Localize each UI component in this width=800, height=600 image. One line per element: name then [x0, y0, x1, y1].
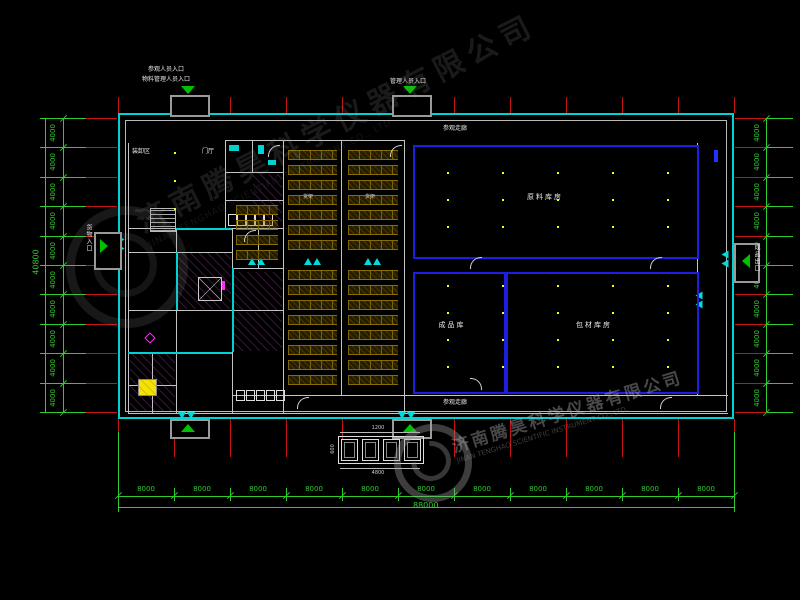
dim-ext	[767, 412, 793, 413]
corridor-label-bottom: 参观走廊	[443, 399, 467, 407]
interior-wall-cyan	[176, 228, 232, 230]
locker-icon	[256, 390, 265, 401]
rack-row	[348, 375, 398, 385]
grid-line-red	[286, 419, 287, 457]
entrance-arrow-icon	[742, 254, 750, 268]
grid-line-red	[86, 118, 117, 119]
dimension-label-left: 4000	[49, 271, 57, 289]
grid-line-red	[118, 97, 119, 113]
column-dot	[557, 285, 559, 287]
grid-line-red	[86, 206, 117, 207]
grid-line-red	[735, 177, 767, 178]
door-icon	[177, 412, 195, 419]
sanitary-fixture-icon	[258, 145, 264, 154]
rack-row	[348, 360, 398, 370]
detail-dim-bottom: 4800	[372, 469, 385, 477]
dimension-total-left: 40800	[32, 249, 41, 274]
door-leaf-icon	[722, 260, 729, 268]
hatched-room	[130, 354, 175, 412]
door-leaf-icon	[722, 251, 729, 259]
grid-line-red	[86, 383, 117, 384]
rack-row	[348, 345, 398, 355]
grid-line-red	[86, 294, 117, 295]
door-leaf-icon	[313, 258, 321, 265]
dim-ext	[767, 118, 793, 119]
storage-room-finished	[413, 272, 506, 394]
grid-line-red	[286, 97, 287, 113]
entrance-canopy	[94, 232, 122, 270]
sanitary-fixture-icon	[268, 160, 276, 165]
detail-dim-line-top	[340, 432, 420, 433]
cad-floor-plan-canvas: 参观人员入口 物料管理人员入口 管理人员入口 货物入口 成品出口 参观走廊 参观…	[0, 0, 800, 600]
storage-room-packaging	[506, 272, 699, 394]
rack-row	[288, 285, 337, 295]
door-icon	[364, 258, 382, 265]
rack-row	[288, 150, 337, 160]
interior-wall	[341, 140, 342, 395]
dimension-label-right: 4000	[753, 330, 761, 348]
door-leaf-icon	[187, 412, 195, 419]
column-dot	[557, 339, 559, 341]
dimension-label: 8000	[585, 485, 603, 493]
grid-line-red	[566, 419, 567, 457]
rack-row	[348, 210, 398, 220]
dimension-label-left: 4000	[49, 183, 57, 201]
entrance-canopy	[392, 95, 432, 117]
rack-row	[288, 375, 337, 385]
door-icon	[397, 412, 415, 419]
rack-row	[288, 180, 337, 190]
dimension-label-left: 4000	[49, 359, 57, 377]
rack-row	[236, 235, 278, 245]
rack-row	[288, 225, 337, 235]
column-dot	[612, 366, 614, 368]
column-dot	[557, 172, 559, 174]
grid-line-red	[735, 353, 767, 354]
column-dot	[174, 152, 176, 154]
grid-line-red	[230, 419, 231, 457]
interior-wall	[225, 140, 405, 141]
door-leaf-icon	[304, 258, 312, 265]
grid-line-red	[454, 97, 455, 113]
grid-line-red	[230, 97, 231, 113]
rack-row	[288, 210, 337, 220]
grid-line-red	[342, 97, 343, 113]
dimension-label: 8000	[249, 485, 267, 493]
grid-line-red	[622, 419, 623, 457]
locker-icon	[236, 390, 245, 401]
grid-line-red	[622, 97, 623, 113]
grid-line-red	[735, 294, 767, 295]
column-dot	[502, 226, 504, 228]
dim-ext	[767, 353, 793, 354]
column-dot	[447, 285, 449, 287]
rack-label-2: 货架	[365, 193, 375, 201]
column-dot	[502, 339, 504, 341]
door-leaf-icon	[373, 258, 381, 265]
entrance-arrow-icon	[181, 86, 195, 94]
entrance-label-visitor-line2: 物料管理人员入口	[142, 76, 190, 84]
dimension-label: 8000	[473, 485, 491, 493]
dimension-label-right: 4000	[753, 389, 761, 407]
column-dot	[612, 285, 614, 287]
column-dot	[667, 172, 669, 174]
column-dot	[667, 199, 669, 201]
grid-line-red	[735, 206, 767, 207]
grid-line-red	[734, 97, 735, 113]
rack-row	[348, 180, 398, 190]
rack-row	[348, 240, 398, 250]
entrance-label-visitor-line1: 参观人员入口	[148, 66, 184, 74]
dimension-label-right: 4000	[753, 300, 761, 318]
detail-cell	[404, 439, 421, 461]
detail-cell	[362, 439, 379, 461]
hatched-room	[234, 312, 282, 351]
grid-line-red	[735, 118, 767, 119]
rack-row	[348, 225, 398, 235]
column-dot	[557, 366, 559, 368]
interior-wall	[128, 413, 728, 414]
stairs-icon	[150, 208, 176, 232]
locker-icon	[266, 390, 275, 401]
grid-line-red	[678, 97, 679, 113]
column-dot	[612, 226, 614, 228]
rack-row	[288, 240, 337, 250]
dimension-label-left: 4000	[49, 124, 57, 142]
door-icon	[304, 258, 322, 265]
interior-wall	[232, 395, 728, 396]
rack-row	[348, 300, 398, 310]
rack-row	[288, 360, 337, 370]
storage-room-raw	[413, 145, 699, 259]
dimension-label: 8000	[361, 485, 379, 493]
column-dot	[612, 339, 614, 341]
entrance-arrow-icon	[100, 239, 108, 253]
grid-line-red	[86, 324, 117, 325]
grid-line-red	[735, 236, 767, 237]
entrance-label-goods-in: 货物入口	[84, 224, 93, 252]
interior-wall	[232, 268, 283, 269]
interior-wall	[128, 143, 129, 413]
detail-box	[338, 436, 424, 464]
dimension-label-right: 4000	[753, 359, 761, 377]
dimension-label: 8000	[305, 485, 323, 493]
dim-ext	[767, 324, 793, 325]
grid-line-red	[678, 419, 679, 457]
grid-line-red	[86, 412, 117, 413]
rack-row	[348, 330, 398, 340]
dimension-label: 8000	[529, 485, 547, 493]
locker-icon	[246, 390, 255, 401]
door-icon	[722, 250, 729, 268]
dimension-label-right: 4000	[753, 124, 761, 142]
entrance-label-goods-out: 成品出口	[752, 244, 761, 272]
dimension-label: 8000	[697, 485, 715, 493]
grid-line-red	[735, 147, 767, 148]
entrance-label-manager: 管理人员入口	[390, 78, 426, 86]
column-dot	[174, 180, 176, 182]
grid-line-red	[86, 353, 117, 354]
interior-wall	[283, 140, 284, 413]
dimension-label-right: 4000	[753, 183, 761, 201]
entrance-arrow-icon	[403, 86, 417, 94]
dimension-label-left: 4000	[49, 153, 57, 171]
detail-dim-left: 600	[329, 444, 337, 454]
room-label-finished: 成品库	[439, 320, 466, 330]
dim-line-bottom	[118, 496, 735, 497]
column-dot	[502, 199, 504, 201]
column-dot	[502, 172, 504, 174]
equipment-xbox-icon	[198, 277, 222, 301]
dimension-label-right: 4000	[753, 153, 761, 171]
dim-ext	[767, 206, 793, 207]
column-dot	[447, 312, 449, 314]
column-dot	[667, 312, 669, 314]
column-dot	[447, 226, 449, 228]
door-leaf-icon	[178, 412, 186, 419]
sanitary-fixture-icon	[229, 145, 239, 151]
locker-icon	[276, 390, 285, 401]
grid-line-red	[454, 419, 455, 457]
rack-row	[288, 330, 337, 340]
detail-cell	[383, 439, 400, 461]
dimension-label-left: 4000	[49, 300, 57, 318]
dimension-total-bottom: 88000	[413, 501, 438, 510]
column-dot	[667, 285, 669, 287]
dimension-label: 8000	[641, 485, 659, 493]
column-dot	[174, 208, 176, 210]
interior-wall	[404, 140, 405, 413]
dimension-label: 8000	[193, 485, 211, 493]
interior-wall	[252, 140, 253, 172]
dimension-label: 8000	[417, 485, 435, 493]
dim-ext	[767, 383, 793, 384]
grid-line-red	[566, 97, 567, 113]
rack-row	[236, 205, 278, 215]
interior-wall	[128, 310, 283, 311]
column-dot	[502, 366, 504, 368]
rack-row	[288, 300, 337, 310]
entrance-arrow-icon	[403, 424, 417, 432]
rack-row	[348, 270, 398, 280]
dimension-label-right: 4000	[753, 212, 761, 230]
column-dot	[612, 199, 614, 201]
column-dot	[557, 226, 559, 228]
dim-ext	[767, 236, 793, 237]
dim-ext	[767, 177, 793, 178]
grid-line-red	[735, 383, 767, 384]
door-leaf-icon	[398, 412, 406, 419]
area-label-hall: 门厅	[202, 148, 214, 156]
hatched-room	[234, 272, 282, 310]
rack-row	[288, 315, 337, 325]
grid-line-red	[86, 147, 117, 148]
column-dot	[667, 339, 669, 341]
column-dot	[667, 366, 669, 368]
column-dot	[447, 339, 449, 341]
rack-row	[288, 345, 337, 355]
rack-row	[236, 220, 278, 230]
interior-wall	[225, 172, 283, 173]
grid-line-red	[510, 97, 511, 113]
column-dot	[502, 285, 504, 287]
detail-dim-top: 1200	[372, 424, 385, 432]
dim-ext	[767, 294, 793, 295]
dimension-label-left: 4000	[49, 389, 57, 407]
dim-ext	[767, 265, 793, 266]
entrance-arrow-icon	[181, 424, 195, 432]
rack-row	[288, 270, 337, 280]
room-label-packaging: 包材库房	[576, 320, 612, 330]
grid-line-red	[735, 412, 767, 413]
dimension-label: 8000	[137, 485, 155, 493]
rack-row	[236, 250, 278, 260]
column-dot	[557, 312, 559, 314]
rack-row	[348, 315, 398, 325]
dimension-label-left: 4000	[49, 242, 57, 260]
blue-mark-icon	[714, 150, 718, 162]
door-leaf-icon	[407, 412, 415, 419]
column-dot	[612, 312, 614, 314]
area-label-loading: 装卸区	[132, 148, 150, 156]
entrance-canopy	[170, 95, 210, 117]
grid-line-red	[86, 177, 117, 178]
rack-row	[348, 285, 398, 295]
column-dot	[667, 226, 669, 228]
grid-line-red	[735, 324, 767, 325]
dimension-label-left: 4000	[49, 212, 57, 230]
rack-row	[288, 165, 337, 175]
column-dot	[612, 172, 614, 174]
column-dot	[447, 199, 449, 201]
room-label-raw-material: 原料库房	[527, 192, 563, 202]
column-dot	[502, 312, 504, 314]
interior-wall	[225, 140, 226, 228]
rack-label-1: 货架	[303, 193, 313, 201]
column-dot	[447, 172, 449, 174]
dim-ext	[767, 147, 793, 148]
door-leaf-icon	[364, 258, 372, 265]
dimension-label-left: 4000	[49, 330, 57, 348]
grid-line-red	[510, 419, 511, 457]
column-dot	[447, 366, 449, 368]
corridor-label-top: 参观走廊	[443, 125, 467, 133]
detail-cell	[341, 439, 358, 461]
rack-row	[348, 165, 398, 175]
